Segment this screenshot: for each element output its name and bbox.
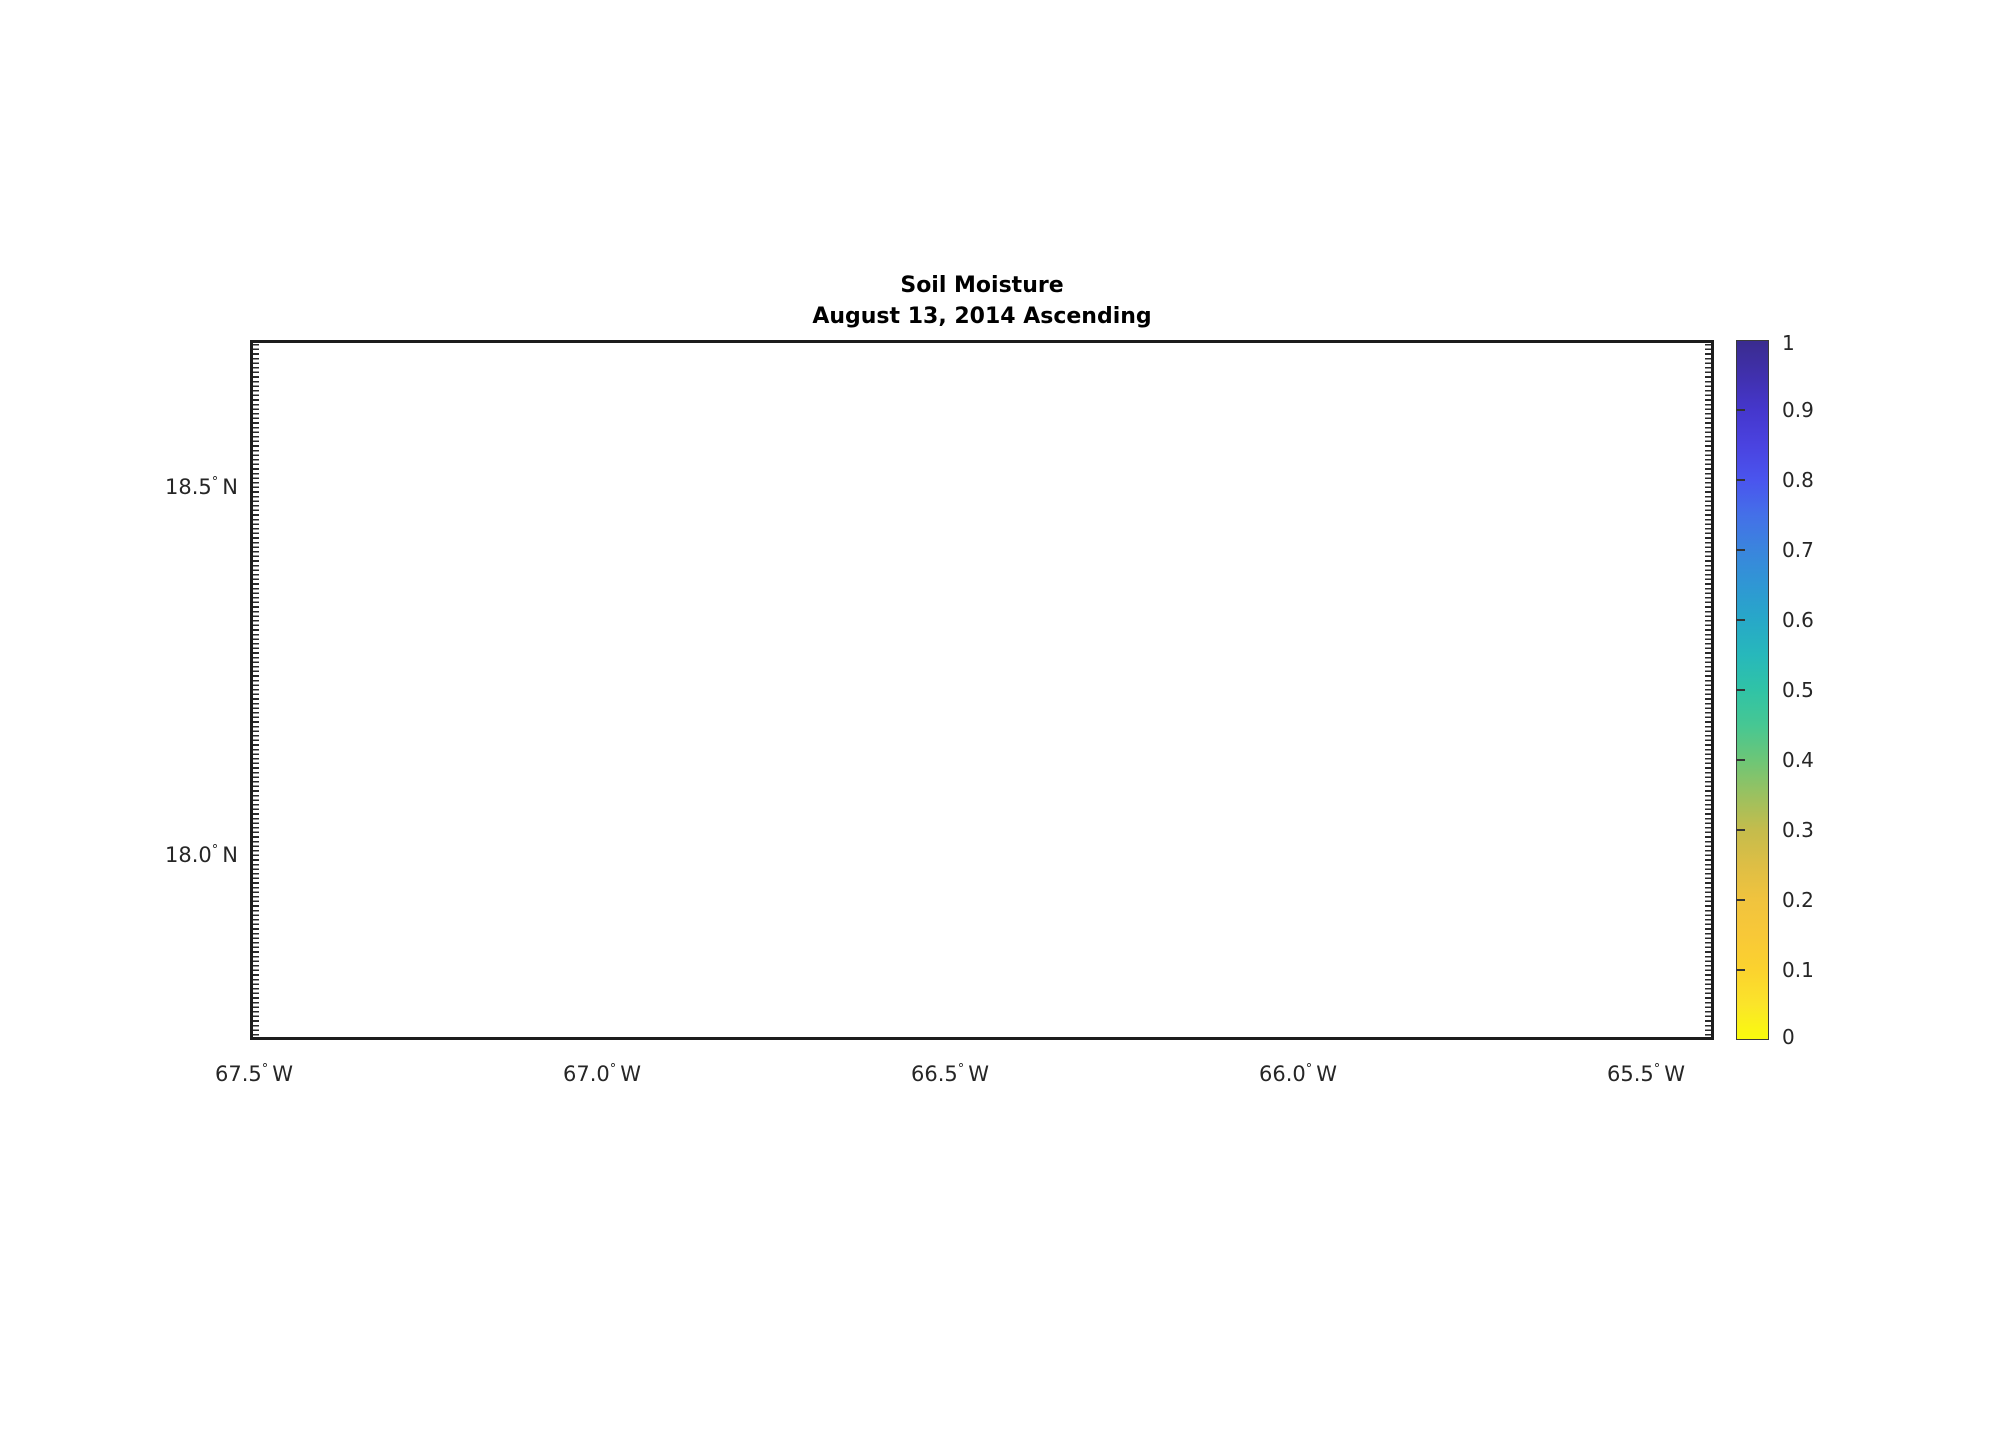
- x-tick-66-5W: 66.5°W: [880, 1062, 1020, 1086]
- degree-symbol: °: [1654, 1062, 1661, 1077]
- plot-title-line1: Soil Moisture: [250, 270, 1714, 301]
- colorbar-label-0-0: 0: [1782, 1025, 1795, 1049]
- degree-symbol: °: [262, 1062, 269, 1077]
- colorbar-label-0-7: 0.7: [1782, 538, 1814, 562]
- colorbar-label-0-2: 0.2: [1782, 888, 1814, 912]
- degree-symbol: °: [212, 475, 219, 490]
- x-tick-unit: W: [1664, 1062, 1685, 1086]
- x-tick-value: 66.5: [911, 1062, 958, 1086]
- y-axis-minor-ticks-right: [1705, 344, 1711, 1036]
- y-tick-unit: N: [222, 475, 238, 499]
- degree-symbol: °: [212, 843, 219, 858]
- colorbar-tick: [1736, 969, 1745, 971]
- colorbar-tick: [1736, 689, 1745, 691]
- y-axis-minor-ticks-left: [253, 344, 259, 1036]
- x-tick-65-5W: 65.5°W: [1576, 1062, 1716, 1086]
- degree-symbol: °: [1306, 1062, 1313, 1077]
- x-tick-unit: W: [272, 1062, 293, 1086]
- y-tick-value: 18.0: [165, 843, 212, 867]
- colorbar-tick: [1736, 899, 1745, 901]
- plot-border: [250, 340, 1714, 1040]
- colorbar-label-1-0: 1: [1782, 331, 1795, 355]
- y-tick-18-5N: 18.5°N: [108, 475, 238, 499]
- x-tick-67-5W: 67.5°W: [184, 1062, 324, 1086]
- x-tick-value: 67.0: [563, 1062, 610, 1086]
- colorbar-tick: [1736, 759, 1745, 761]
- x-tick-67-0W: 67.0°W: [532, 1062, 672, 1086]
- y-tick-unit: N: [222, 843, 238, 867]
- degree-symbol: °: [958, 1062, 965, 1077]
- colorbar-label-0-8: 0.8: [1782, 468, 1814, 492]
- x-tick-value: 66.0: [1259, 1062, 1306, 1086]
- colorbar-tick: [1736, 829, 1745, 831]
- x-tick-unit: W: [620, 1062, 641, 1086]
- colorbar-label-0-4: 0.4: [1782, 748, 1814, 772]
- figure-canvas: Soil Moisture August 13, 2014 Ascending: [0, 0, 1991, 1433]
- degree-symbol: °: [610, 1062, 617, 1077]
- colorbar-label-0-5: 0.5: [1782, 678, 1814, 702]
- x-tick-unit: W: [1316, 1062, 1337, 1086]
- x-tick-value: 65.5: [1607, 1062, 1654, 1086]
- y-tick-18-0N: 18.0°N: [108, 843, 238, 867]
- plot-title-line2: August 13, 2014 Ascending: [250, 301, 1714, 332]
- x-tick-value: 67.5: [215, 1062, 262, 1086]
- colorbar-tick: [1736, 479, 1745, 481]
- x-tick-66-0W: 66.0°W: [1228, 1062, 1368, 1086]
- plot-title: Soil Moisture August 13, 2014 Ascending: [250, 270, 1714, 332]
- colorbar-label-0-6: 0.6: [1782, 608, 1814, 632]
- colorbar-label-0-9: 0.9: [1782, 398, 1814, 422]
- colorbar-tick: [1736, 619, 1745, 621]
- colorbar-label-0-3: 0.3: [1782, 818, 1814, 842]
- colorbar-tick: [1736, 549, 1745, 551]
- x-tick-unit: W: [968, 1062, 989, 1086]
- y-tick-value: 18.5: [165, 475, 212, 499]
- colorbar-tick: [1736, 409, 1745, 411]
- colorbar-label-0-1: 0.1: [1782, 958, 1814, 982]
